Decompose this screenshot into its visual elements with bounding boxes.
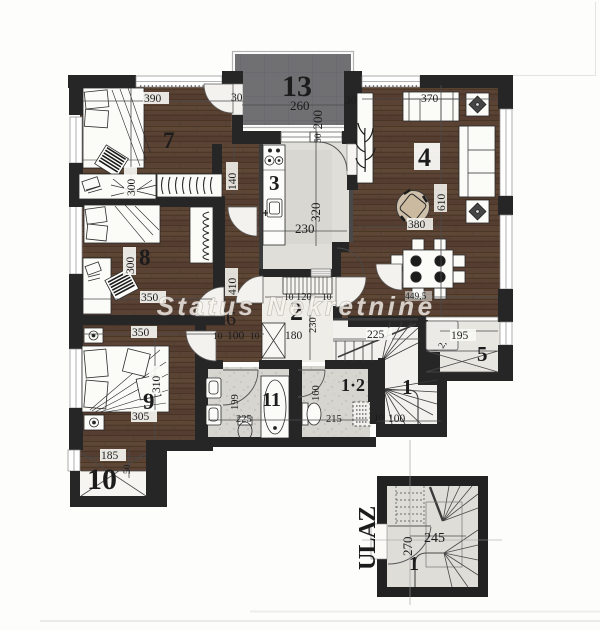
svg-text:1: 1 — [409, 553, 419, 575]
svg-text:ULAZ: ULAZ — [355, 507, 381, 570]
svg-text:30: 30 — [231, 92, 243, 104]
svg-text:180: 180 — [285, 330, 303, 342]
svg-text:185: 185 — [101, 450, 119, 462]
svg-text:7: 7 — [163, 128, 175, 153]
svg-text:370: 370 — [421, 93, 439, 105]
svg-text:30: 30 — [345, 95, 357, 107]
svg-text:300: 300 — [126, 179, 138, 197]
svg-text:380: 380 — [408, 219, 426, 231]
svg-text:100: 100 — [227, 330, 245, 342]
svg-text:195: 195 — [451, 330, 469, 342]
svg-text:50: 50 — [314, 133, 324, 143]
svg-text:390: 390 — [144, 93, 162, 105]
svg-text:100: 100 — [388, 413, 406, 425]
svg-text:11: 11 — [262, 389, 281, 411]
svg-text:50: 50 — [123, 464, 133, 474]
svg-text:10: 10 — [374, 414, 384, 424]
svg-text:5: 5 — [477, 342, 488, 366]
svg-text:245: 245 — [424, 531, 445, 546]
svg-text:320: 320 — [308, 203, 323, 223]
svg-text:610: 610 — [436, 194, 448, 212]
svg-text:1: 1 — [402, 375, 413, 399]
svg-text:305: 305 — [132, 411, 150, 423]
svg-text:230: 230 — [295, 221, 315, 236]
svg-text:225: 225 — [367, 329, 385, 341]
svg-text:200: 200 — [310, 110, 325, 130]
svg-text:10: 10 — [213, 332, 223, 342]
svg-text:10: 10 — [87, 463, 117, 496]
svg-text:260: 260 — [290, 98, 310, 113]
svg-text:310: 310 — [151, 376, 163, 394]
svg-text:215: 215 — [326, 414, 342, 425]
svg-text:350: 350 — [132, 327, 150, 339]
svg-text:199: 199 — [230, 394, 241, 410]
svg-text:140: 140 — [227, 173, 239, 191]
svg-text:Status Nekretnine: Status Nekretnine — [157, 291, 436, 321]
svg-text:1·2: 1·2 — [341, 375, 365, 395]
svg-text:160: 160 — [311, 385, 322, 401]
svg-text:4: 4 — [418, 143, 431, 172]
svg-text:8: 8 — [139, 245, 151, 270]
svg-text:225: 225 — [236, 414, 252, 425]
svg-text:300: 300 — [125, 257, 137, 275]
svg-text:10: 10 — [250, 332, 260, 342]
svg-text:3: 3 — [269, 171, 280, 195]
